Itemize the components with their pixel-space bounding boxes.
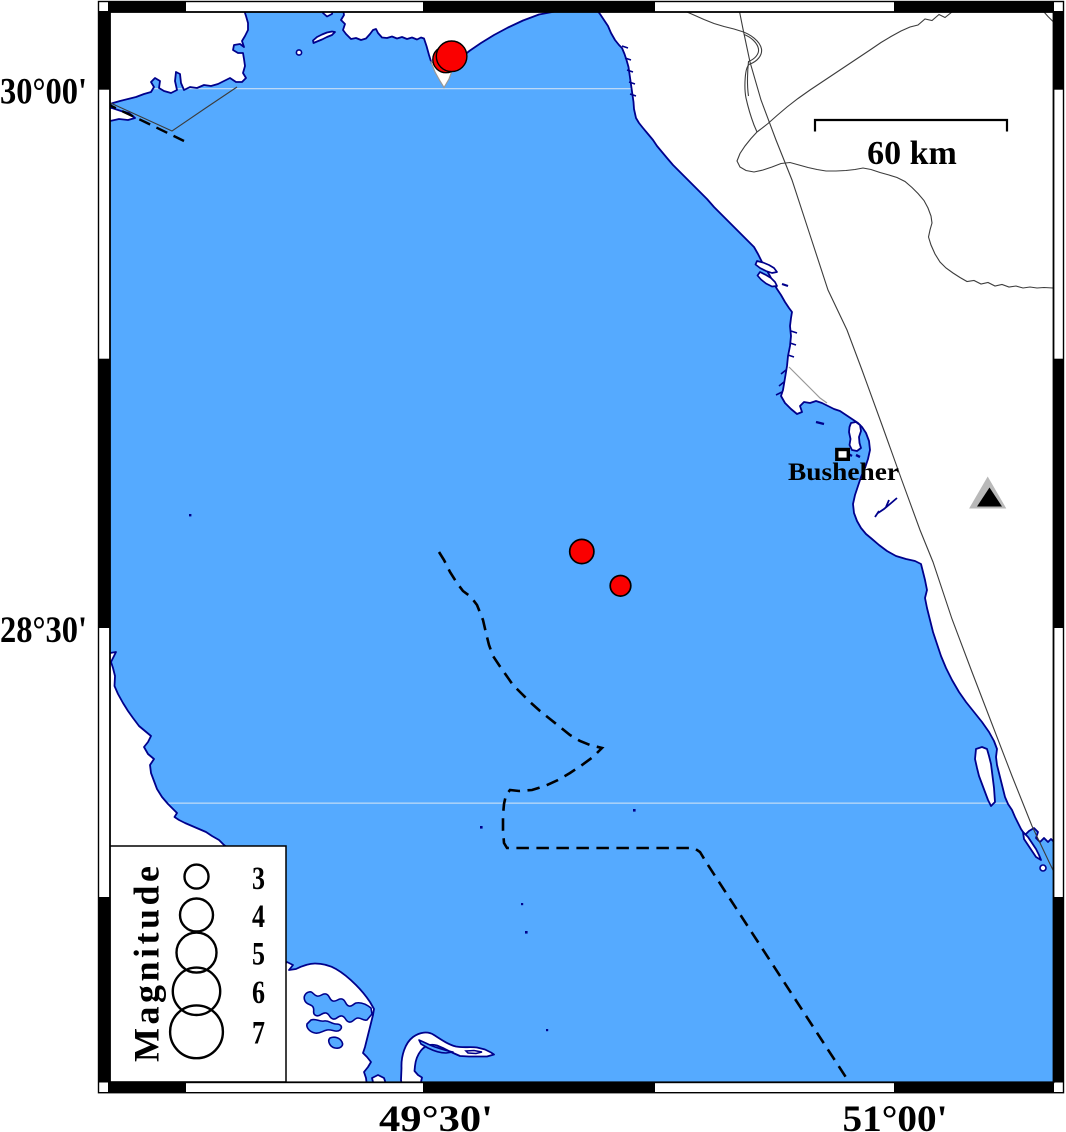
svg-text:7: 7 (252, 1016, 265, 1052)
svg-text:51°00': 51°00' (843, 1098, 948, 1132)
svg-text:49°30': 49°30' (379, 1098, 493, 1132)
svg-text:30°00': 30°00' (0, 71, 87, 112)
svg-text:4: 4 (252, 899, 265, 935)
svg-text:5: 5 (252, 937, 265, 973)
svg-text:Busheher: Busheher (788, 459, 899, 486)
svg-text:60 km: 60 km (867, 135, 957, 172)
svg-text:6: 6 (252, 975, 265, 1011)
svg-text:3: 3 (252, 861, 265, 897)
svg-text:Magnitude: Magnitude (127, 862, 167, 1062)
svg-text:28°30': 28°30' (0, 609, 87, 650)
